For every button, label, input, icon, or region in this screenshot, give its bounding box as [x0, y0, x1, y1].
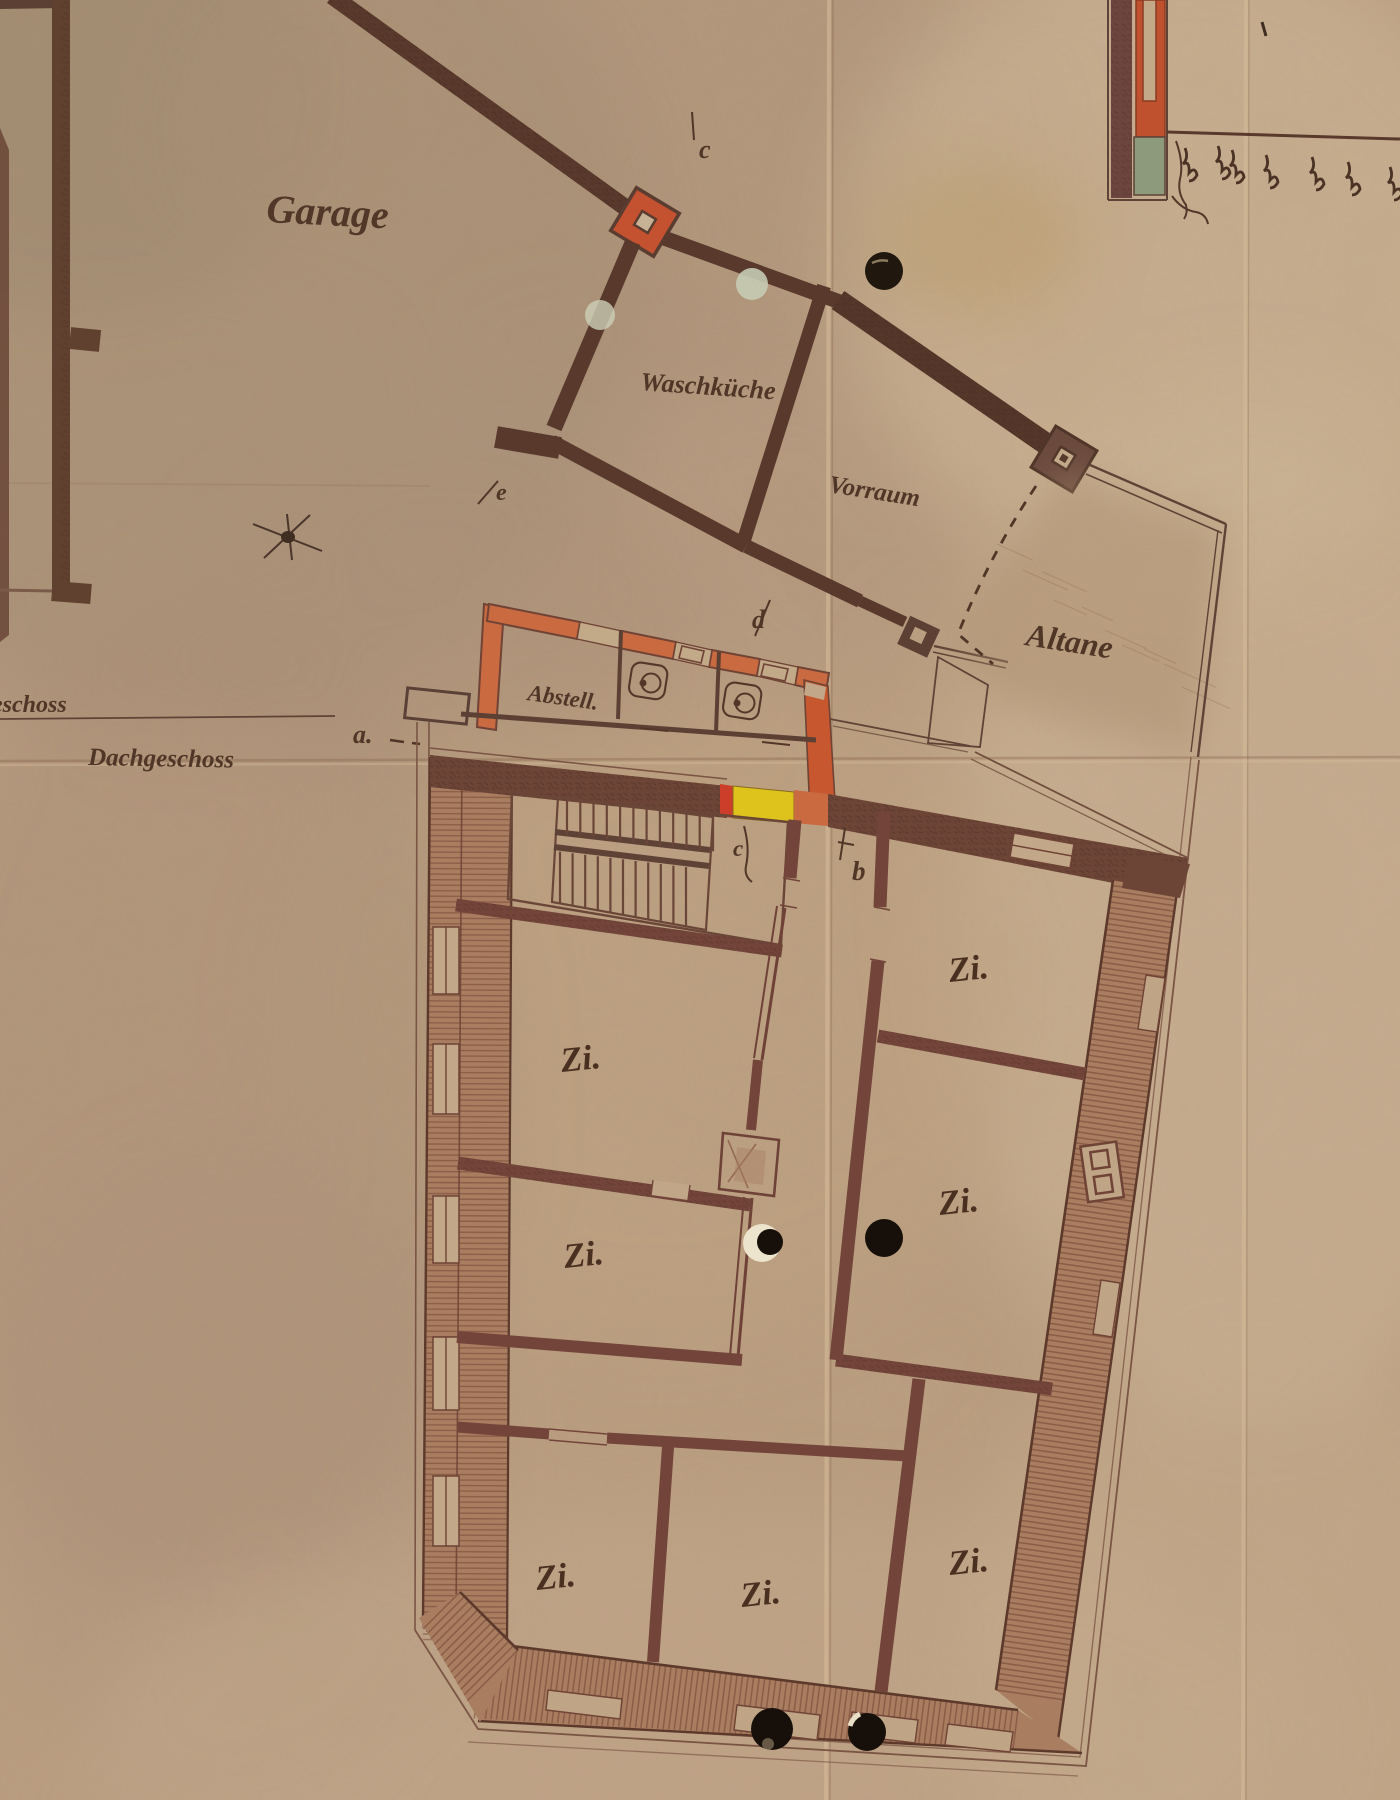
svg-text:Zi.: Zi. — [946, 947, 991, 990]
svg-text:d: d — [752, 605, 766, 634]
svg-text:c: c — [733, 836, 743, 861]
svg-text:Zi.: Zi. — [738, 1572, 783, 1615]
svg-text:Zi.: Zi. — [561, 1233, 606, 1276]
svg-text:c: c — [699, 135, 711, 164]
svg-text:Dachgeschoss: Dachgeschoss — [87, 744, 234, 774]
svg-text:b: b — [852, 856, 866, 886]
svg-text:e: e — [496, 480, 507, 506]
svg-text:Zi.: Zi. — [558, 1037, 603, 1080]
svg-text:Zi.: Zi. — [533, 1555, 578, 1598]
svg-text:eschoss: eschoss — [0, 692, 67, 718]
svg-text:Zi.: Zi. — [936, 1180, 981, 1223]
svg-text:Zi.: Zi. — [946, 1540, 991, 1583]
svg-text:a.: a. — [353, 720, 373, 749]
svg-text:Garage: Garage — [266, 186, 390, 237]
